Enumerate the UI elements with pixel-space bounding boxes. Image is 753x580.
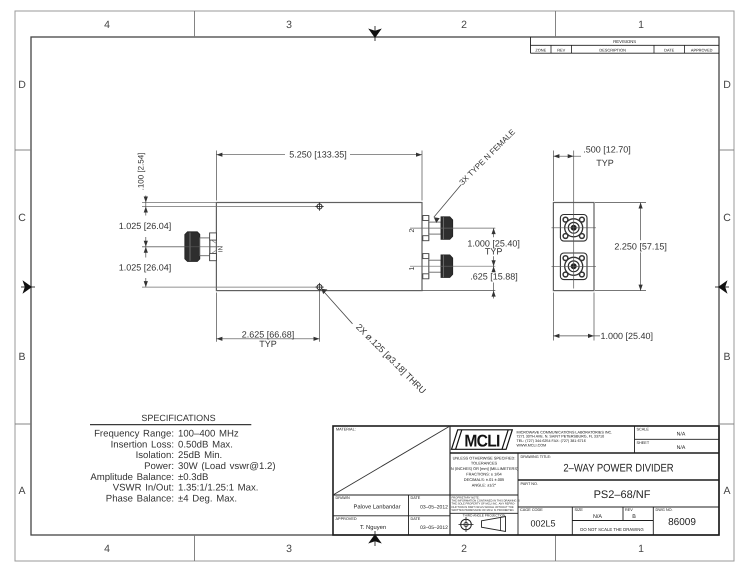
svg-text:ZONE: ZONE — [535, 47, 546, 52]
svg-text:1.025 [26.04]: 1.025 [26.04] — [119, 263, 172, 273]
svg-text:TOLERANCES: TOLERANCES — [471, 461, 498, 466]
svg-text:Phase Balance:: Phase Balance: — [106, 493, 174, 504]
svg-text:TYP: TYP — [259, 339, 277, 349]
svg-text:SHEET: SHEET — [637, 441, 650, 445]
svg-text:03–05–2012: 03–05–2012 — [420, 525, 448, 531]
svg-text:Amplitude Balance:: Amplitude Balance: — [90, 472, 174, 483]
svg-text:Power:: Power: — [144, 461, 174, 472]
svg-text:25dB Min.: 25dB Min. — [178, 450, 222, 461]
svg-text:DATE: DATE — [411, 517, 421, 521]
svg-text:2: 2 — [461, 543, 467, 555]
svg-text:DECIMALS: ±.01 ±.005: DECIMALS: ±.01 ±.005 — [464, 477, 504, 482]
svg-text:002L5: 002L5 — [530, 518, 555, 528]
svg-text:TEL: (727) 344-6254 FAX: (72: TEL: (727) 344-6254 FAX: (727) 381-6716 — [517, 439, 586, 443]
svg-text:SPECIFICATIONS: SPECIFICATIONS — [141, 413, 215, 423]
svg-text:A: A — [18, 485, 25, 497]
svg-text:PART NO.: PART NO. — [521, 482, 539, 486]
svg-text:B: B — [632, 514, 636, 520]
svg-text:SCALE: SCALE — [637, 428, 650, 432]
svg-text:0.50dB Max.: 0.50dB Max. — [178, 439, 233, 450]
svg-text:IN (INCHES) OR [mm] (MILLIMETE: IN (INCHES) OR [mm] (MILLIMETERS) — [450, 466, 519, 471]
svg-text:±0.3dB: ±0.3dB — [178, 472, 208, 483]
svg-text:2: 2 — [461, 19, 467, 31]
svg-text:B: B — [723, 351, 730, 363]
svg-text:REV: REV — [557, 47, 565, 52]
svg-text:2.250 [57.15]: 2.250 [57.15] — [614, 241, 667, 251]
svg-text:1.000 [25.40]: 1.000 [25.40] — [601, 331, 654, 341]
svg-text:4: 4 — [104, 543, 110, 555]
svg-text:N/A: N/A — [677, 445, 686, 451]
svg-text:REV: REV — [625, 508, 633, 512]
svg-text:Frequency Range:: Frequency Range: — [94, 429, 174, 440]
svg-text:1: 1 — [409, 267, 416, 271]
svg-text:86009: 86009 — [668, 517, 696, 528]
svg-text:PS2–68/NF: PS2–68/NF — [594, 489, 651, 501]
svg-text:3: 3 — [286, 19, 292, 31]
svg-text:30W (Load vswr@1.2): 30W (Load vswr@1.2) — [178, 461, 276, 472]
svg-text:VSWR In/Out:: VSWR In/Out: — [113, 483, 174, 494]
svg-text:.625 [15.88]: .625 [15.88] — [470, 272, 518, 282]
svg-text:DRAWING TITLE:: DRAWING TITLE: — [521, 455, 552, 459]
svg-text:7271 30TH AVE. N. SAINT PETERS: 7271 30TH AVE. N. SAINT PETERSBURG, FL 3… — [517, 435, 605, 439]
svg-text:APPROVED: APPROVED — [691, 47, 713, 52]
svg-text:N/A: N/A — [593, 514, 602, 520]
svg-text:DRAWN: DRAWN — [336, 496, 350, 500]
svg-text:03–05–2012: 03–05–2012 — [420, 505, 448, 511]
svg-text:100–400 MHz: 100–400 MHz — [178, 429, 239, 440]
svg-text:MCLI: MCLI — [464, 432, 499, 451]
svg-text:A: A — [723, 485, 730, 497]
svg-text:IN: IN — [218, 246, 225, 252]
svg-text:DO NOT SCALE THE DRAWING: DO NOT SCALE THE DRAWING — [580, 527, 644, 532]
svg-text:D: D — [723, 79, 731, 91]
svg-text:Isolation:: Isolation: — [136, 450, 174, 461]
svg-text:C: C — [723, 212, 731, 224]
svg-text:REVISIONS: REVISIONS — [613, 39, 636, 44]
svg-text:MICROWAVE COMMUNICATIONS LABOR: MICROWAVE COMMUNICATIONS LABORATORIES IN… — [517, 430, 613, 434]
svg-text:Insertion Loss:: Insertion Loss: — [111, 439, 174, 450]
svg-text:ANGLE: ±1/2°: ANGLE: ±1/2° — [472, 482, 497, 487]
svg-text:CAGE CODE: CAGE CODE — [520, 508, 543, 512]
svg-text:UNLESS OTHERWISE SPECIFIED:: UNLESS OTHERWISE SPECIFIED: — [453, 455, 516, 460]
svg-text:.100 [2.54]: .100 [2.54] — [137, 153, 146, 191]
svg-text:1: 1 — [638, 19, 644, 31]
svg-text:Palove Lanbandar: Palove Lanbandar — [353, 504, 400, 511]
svg-text:THIRD ANGLE PROJECTION: THIRD ANGLE PROJECTION — [463, 513, 506, 517]
svg-text:WWW.MCLI.COM: WWW.MCLI.COM — [517, 444, 547, 448]
svg-text:N/A: N/A — [677, 432, 686, 438]
svg-text:TYP: TYP — [485, 246, 503, 256]
svg-text:SIZE: SIZE — [575, 508, 584, 512]
svg-text:5.250 [133.35]: 5.250 [133.35] — [289, 150, 347, 160]
svg-text:1: 1 — [638, 543, 644, 555]
svg-text:DATE: DATE — [411, 496, 421, 500]
svg-text:1.025 [26.04]: 1.025 [26.04] — [119, 221, 172, 231]
svg-text:1.35:1/1.25:1 Max.: 1.35:1/1.25:1 Max. — [178, 483, 258, 494]
svg-text:±4 Deg. Max.: ±4 Deg. Max. — [178, 493, 237, 504]
svg-text:3: 3 — [286, 543, 292, 555]
svg-text:C: C — [18, 212, 26, 224]
svg-text:WRITTEN PERMISSION OF MCLI IS: WRITTEN PERMISSION OF MCLI IS PROHIBITED… — [452, 509, 515, 512]
svg-text:.500 [12.70]: .500 [12.70] — [583, 145, 631, 155]
svg-text:2: 2 — [409, 228, 416, 232]
svg-text:MATERIAL:: MATERIAL: — [336, 428, 356, 432]
svg-text:DESCRIPTION: DESCRIPTION — [599, 47, 626, 52]
svg-text:FRACTIONS: ± 1/64: FRACTIONS: ± 1/64 — [466, 472, 502, 477]
svg-text:2.625 [66.68]: 2.625 [66.68] — [242, 329, 295, 339]
svg-text:TYP: TYP — [596, 158, 614, 168]
svg-text:4: 4 — [104, 19, 110, 31]
svg-text:DWG NO.: DWG NO. — [656, 508, 673, 512]
svg-text:B: B — [18, 351, 25, 363]
svg-text:2–WAY POWER DIVIDER: 2–WAY POWER DIVIDER — [563, 463, 673, 475]
svg-text:D: D — [18, 79, 26, 91]
svg-text:APPROVED: APPROVED — [336, 517, 357, 521]
svg-text:T. Nguyen: T. Nguyen — [360, 525, 386, 531]
svg-text:DATE: DATE — [664, 47, 674, 52]
